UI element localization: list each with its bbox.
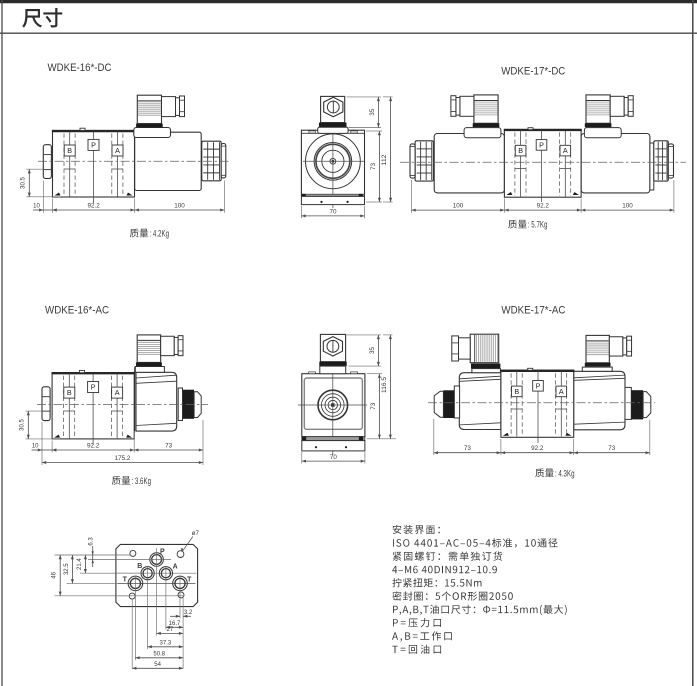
svg-text:P: P	[91, 141, 96, 150]
svg-text:P: P	[539, 141, 544, 150]
svg-text:37.3: 37.3	[160, 641, 172, 647]
svg-text:B: B	[67, 388, 72, 397]
svg-text:92.2: 92.2	[87, 443, 100, 450]
svg-text:175.2: 175.2	[115, 455, 131, 462]
svg-text:27: 27	[167, 627, 174, 633]
svg-text:50.8: 50.8	[153, 652, 165, 658]
svg-text:WDKE-16*-AC: WDKE-16*-AC	[45, 305, 109, 317]
svg-text:B: B	[518, 146, 523, 155]
svg-text:30.5: 30.5	[19, 419, 25, 431]
svg-text:10: 10	[32, 444, 39, 450]
svg-text:ø7: ø7	[192, 530, 200, 537]
svg-text:100: 100	[453, 203, 464, 210]
svg-text:73: 73	[370, 402, 377, 410]
svg-text:16.7: 16.7	[169, 621, 181, 627]
svg-text:35: 35	[369, 108, 376, 116]
svg-text:21.4: 21.4	[77, 558, 83, 570]
svg-text:73: 73	[464, 445, 472, 452]
svg-text:116.5: 116.5	[382, 376, 388, 393]
svg-text:46: 46	[52, 571, 58, 578]
svg-text:70: 70	[329, 209, 337, 216]
svg-text:P: P	[536, 381, 541, 390]
svg-text:T: T	[187, 577, 192, 584]
svg-text:6.3: 6.3	[89, 537, 95, 546]
svg-text:: 4.3Kg: : 4.3Kg	[555, 468, 575, 478]
svg-text:WDKE-16*-DC: WDKE-16*-DC	[48, 62, 112, 74]
svg-text:100: 100	[174, 203, 185, 210]
svg-text:112: 112	[382, 154, 388, 166]
svg-text:: 3.6Kg: : 3.6Kg	[132, 476, 152, 486]
svg-text:WDKE-17*-DC: WDKE-17*-DC	[501, 66, 565, 78]
svg-text:B: B	[514, 387, 519, 396]
svg-text:100: 100	[622, 203, 633, 210]
svg-text:P: P	[160, 549, 165, 556]
svg-text:92.2: 92.2	[87, 203, 100, 210]
svg-text:P: P	[91, 383, 96, 392]
svg-text:: 4.2Kg: : 4.2Kg	[150, 229, 170, 239]
svg-text:35: 35	[369, 347, 376, 355]
svg-text:10: 10	[33, 204, 40, 210]
svg-text:A: A	[563, 146, 568, 155]
svg-text:A: A	[173, 564, 178, 571]
svg-text:A: A	[115, 388, 120, 397]
svg-text:30.5: 30.5	[20, 177, 26, 189]
svg-text:73: 73	[608, 445, 616, 452]
svg-text:T: T	[123, 577, 128, 584]
svg-text:92.2: 92.2	[537, 203, 550, 210]
svg-text:B: B	[67, 146, 72, 155]
svg-text:54: 54	[154, 662, 161, 668]
svg-text:A: A	[115, 146, 120, 155]
svg-text:WDKE-17*-AC: WDKE-17*-AC	[501, 305, 565, 317]
svg-text:70: 70	[330, 454, 338, 461]
svg-text:3.2: 3.2	[184, 610, 193, 616]
svg-text:: 5.7Kg: : 5.7Kg	[528, 220, 548, 230]
svg-text:B: B	[137, 563, 142, 570]
svg-text:73: 73	[165, 443, 173, 450]
svg-text:A: A	[559, 387, 564, 396]
svg-text:92.2: 92.2	[531, 445, 544, 452]
svg-text:73: 73	[370, 163, 377, 171]
svg-text:32.5: 32.5	[64, 563, 70, 575]
